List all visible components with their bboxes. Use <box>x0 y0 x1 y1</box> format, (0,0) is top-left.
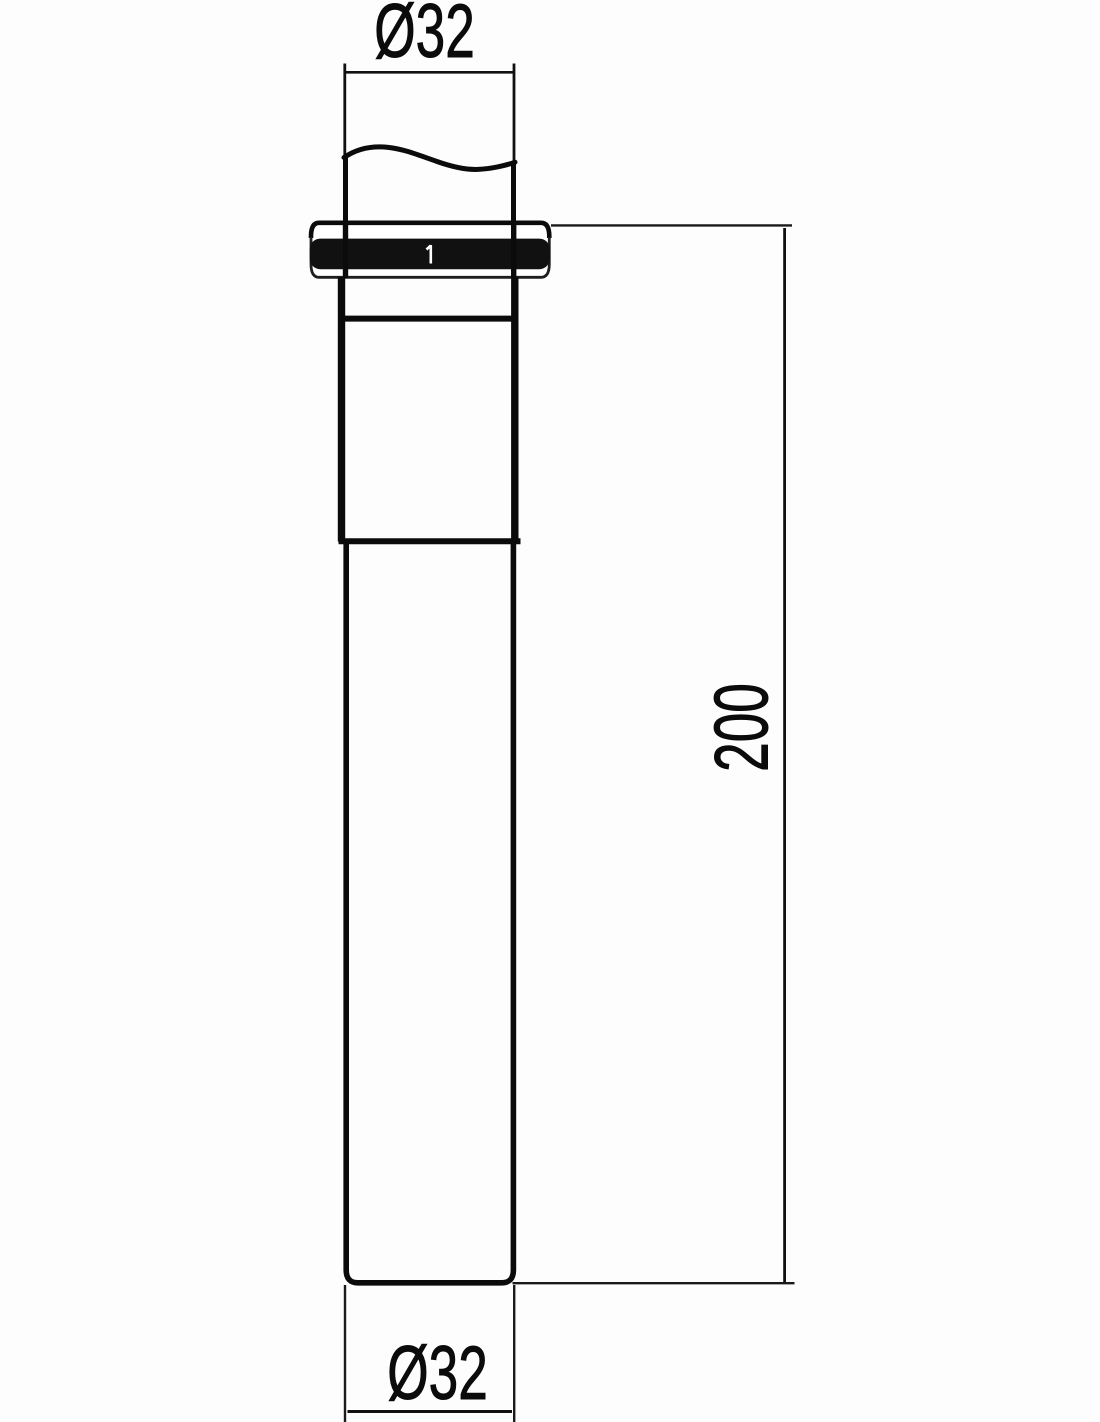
svg-text:200: 200 <box>699 683 784 772</box>
svg-text:Ø32: Ø32 <box>374 0 475 73</box>
svg-text:Ø32: Ø32 <box>387 1331 488 1416</box>
